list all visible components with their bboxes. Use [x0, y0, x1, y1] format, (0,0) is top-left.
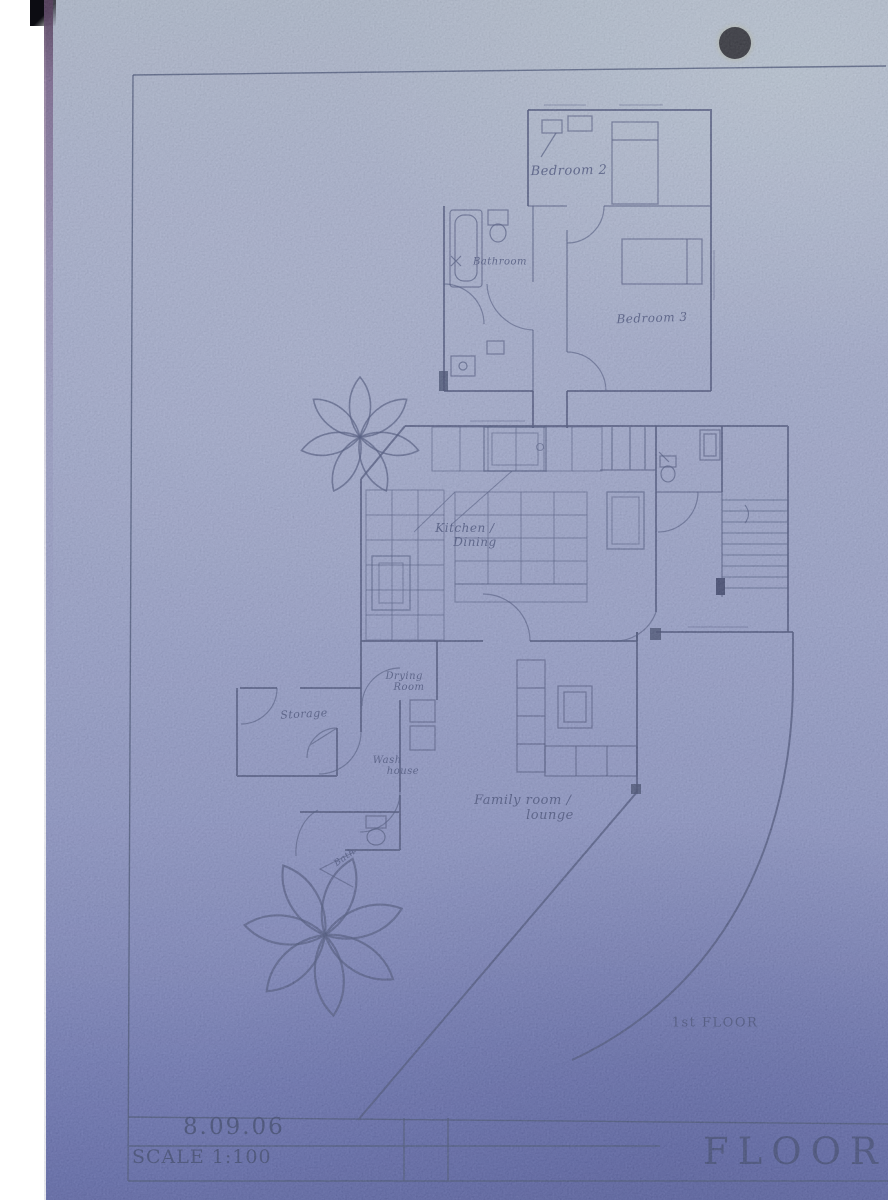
label-kitchen-dining: Kitchen / Dining	[435, 521, 496, 549]
label-wash-line2: house	[387, 766, 419, 777]
title-block-scale: SCALE 1:100	[132, 1146, 272, 1168]
label-drying-line2: Room	[393, 682, 424, 693]
paper-sheet	[46, 0, 888, 1200]
label-wash-line1: Wash	[373, 755, 402, 766]
label-bathroom: Bathroom	[473, 257, 527, 268]
label-bedroom-2: Bedroom 2	[531, 163, 608, 179]
title-block-title: FLOOR PL	[703, 1130, 888, 1173]
paper-left-edge	[44, 0, 53, 680]
label-family-line2: lounge	[526, 808, 574, 823]
label-first-floor: 1st FLOOR	[672, 1016, 759, 1031]
label-drying-room: Drying Room	[385, 671, 424, 693]
hole-punch-mark	[719, 27, 751, 59]
label-family-line1: Family room /	[474, 793, 571, 808]
label-kitchen-line2: Dining	[453, 535, 496, 549]
label-family-lounge: Family room / lounge	[474, 793, 574, 823]
label-drying-line1: Drying	[385, 671, 423, 682]
label-kitchen-line1: Kitchen /	[435, 521, 494, 535]
label-wash-house: Wash house	[373, 755, 419, 777]
title-block-date: 8.09.06	[183, 1114, 285, 1140]
label-storage: Storage	[280, 706, 328, 721]
label-bedroom-3: Bedroom 3	[616, 310, 688, 326]
